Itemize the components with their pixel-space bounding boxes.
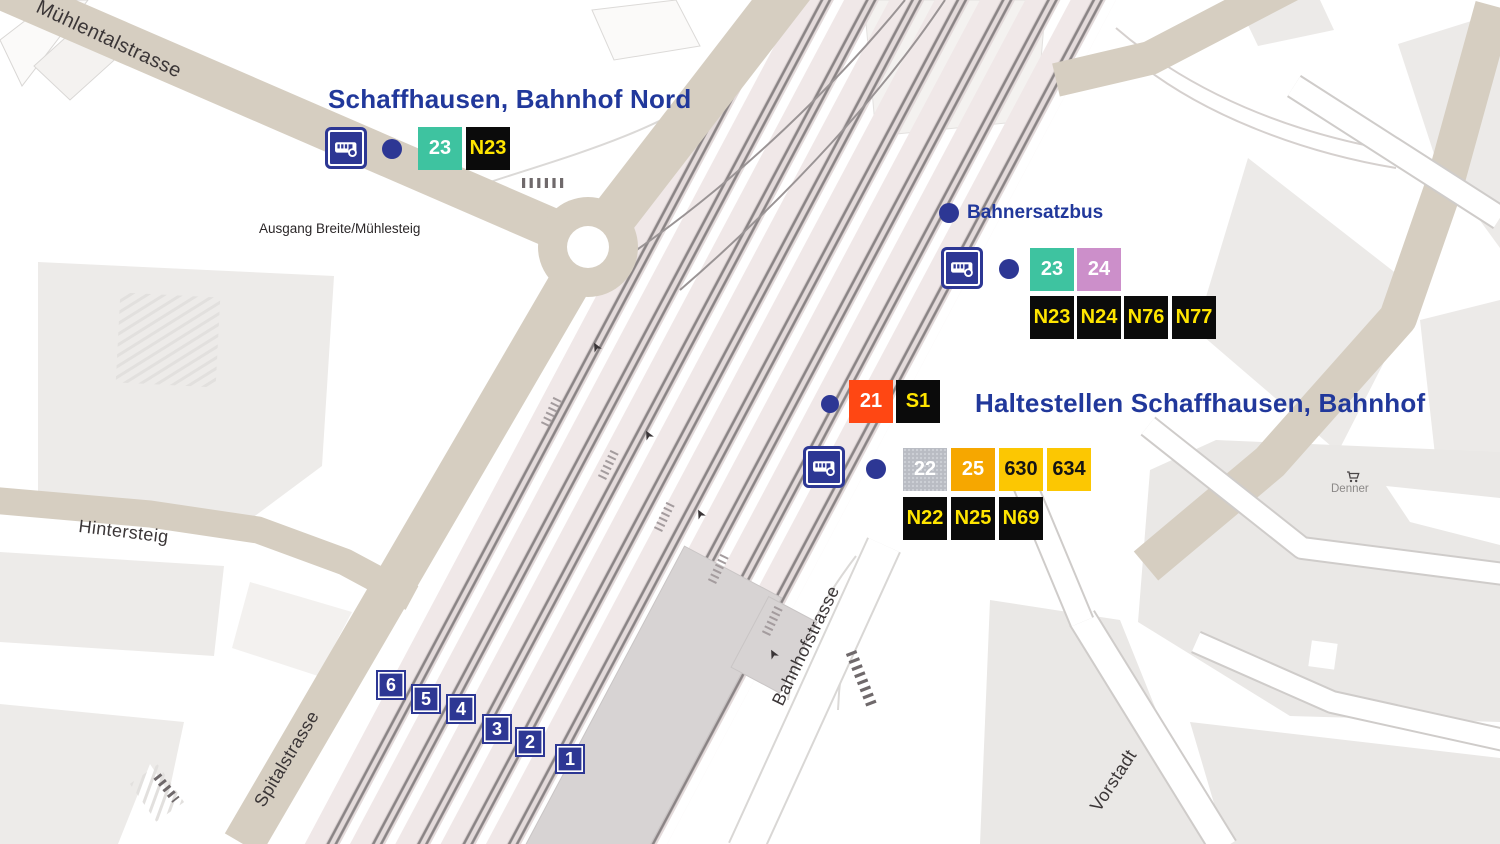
line-badge[interactable]: N76 (1124, 296, 1168, 339)
platform-marker[interactable]: 5 (411, 684, 441, 714)
line-badge[interactable]: 25 (951, 448, 995, 491)
bus-stop-icon[interactable] (325, 127, 367, 169)
line-badge[interactable]: 23 (418, 127, 462, 170)
bus-stop-icon[interactable] (941, 247, 983, 289)
stop-dot (382, 139, 402, 159)
station-map: Mühlentalstrasse Hintersteig Spitalstras… (0, 0, 1500, 844)
platform-marker[interactable]: 1 (555, 744, 585, 774)
line-badge[interactable]: 24 (1077, 248, 1121, 291)
line-badge[interactable]: 630 (999, 448, 1043, 491)
line-badge[interactable]: 23 (1030, 248, 1074, 291)
map-background (0, 0, 1500, 844)
platform-marker[interactable]: 3 (482, 714, 512, 744)
line-badge[interactable]: N25 (951, 497, 995, 540)
exit-label: Ausgang Breite/Mühlesteig (259, 221, 420, 236)
line-badge[interactable]: S1 (896, 380, 940, 423)
line-badge[interactable]: N23 (466, 127, 510, 170)
line-badge[interactable]: N69 (999, 497, 1043, 540)
line-badge[interactable]: N23 (1030, 296, 1074, 339)
line-badge[interactable]: N24 (1077, 296, 1121, 339)
line-badge[interactable]: N77 (1172, 296, 1216, 339)
line-badge[interactable]: N22 (903, 497, 947, 540)
line-badge[interactable]: 21 (849, 380, 893, 423)
title-bahnersatzbus: Bahnersatzbus (967, 202, 1103, 224)
line-badge[interactable]: 634 (1047, 448, 1091, 491)
store-label: Denner (1331, 483, 1369, 495)
platform-marker[interactable]: 6 (376, 670, 406, 700)
stop-dot (821, 395, 839, 413)
title-haltestellen: Haltestellen Schaffhausen, Bahnhof (975, 388, 1425, 419)
platform-marker[interactable]: 4 (446, 694, 476, 724)
stop-dot (939, 203, 959, 223)
stop-dot (866, 459, 886, 479)
line-badge[interactable]: 22 (903, 448, 947, 491)
stop-dot (999, 259, 1019, 279)
platform-marker[interactable]: 2 (515, 727, 545, 757)
title-bahnhof-nord: Schaffhausen, Bahnhof Nord (328, 84, 691, 115)
bus-stop-icon[interactable] (803, 446, 845, 488)
